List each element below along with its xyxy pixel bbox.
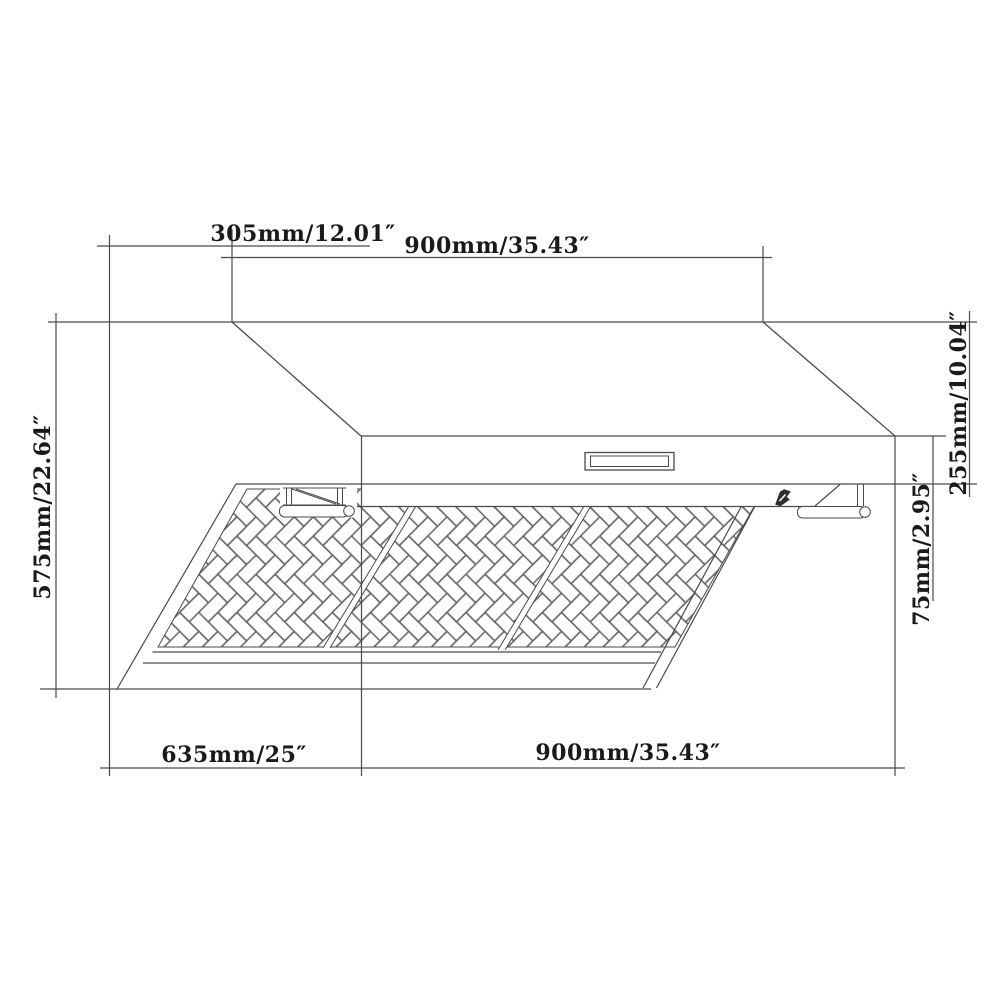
hood-outline xyxy=(48,322,977,484)
hood-bottom-front-rim xyxy=(362,485,896,507)
hood-right-slope xyxy=(763,322,895,436)
range-hood-dimension-drawing: 305mm/12.01″ 900mm/35.43″ 575mm/22.64″ 2… xyxy=(0,0,1000,1000)
right-rail-end-cap xyxy=(860,507,871,518)
dim-label-top-right: 900mm/35.43″ xyxy=(404,233,589,259)
dim-label-right-lower: 75mm/2.95″ xyxy=(909,472,935,626)
left-mounting-bracket xyxy=(280,487,358,518)
baffle-filter-pattern xyxy=(158,489,764,647)
baffle-filter-tray xyxy=(117,484,895,689)
left-rail-end-cap xyxy=(344,506,355,517)
dim-label-top-left: 305mm/12.01″ xyxy=(210,221,395,247)
hood-left-slope xyxy=(232,322,361,436)
control-panel-inner xyxy=(591,456,669,467)
right-grease-rail xyxy=(798,507,866,519)
dim-label-bottom-left: 635mm/25″ xyxy=(161,742,306,768)
dimension-drawing-page: 305mm/12.01″ 900mm/35.43″ 575mm/22.64″ 2… xyxy=(0,0,1000,1000)
dim-label-bottom-right: 900mm/35.43″ xyxy=(535,740,720,766)
left-grease-rail xyxy=(280,506,349,518)
dim-label-right-upper: 255mm/10.04″ xyxy=(946,310,972,495)
dim-label-left: 575mm/22.64″ xyxy=(30,414,56,599)
control-panel[interactable] xyxy=(585,453,674,471)
